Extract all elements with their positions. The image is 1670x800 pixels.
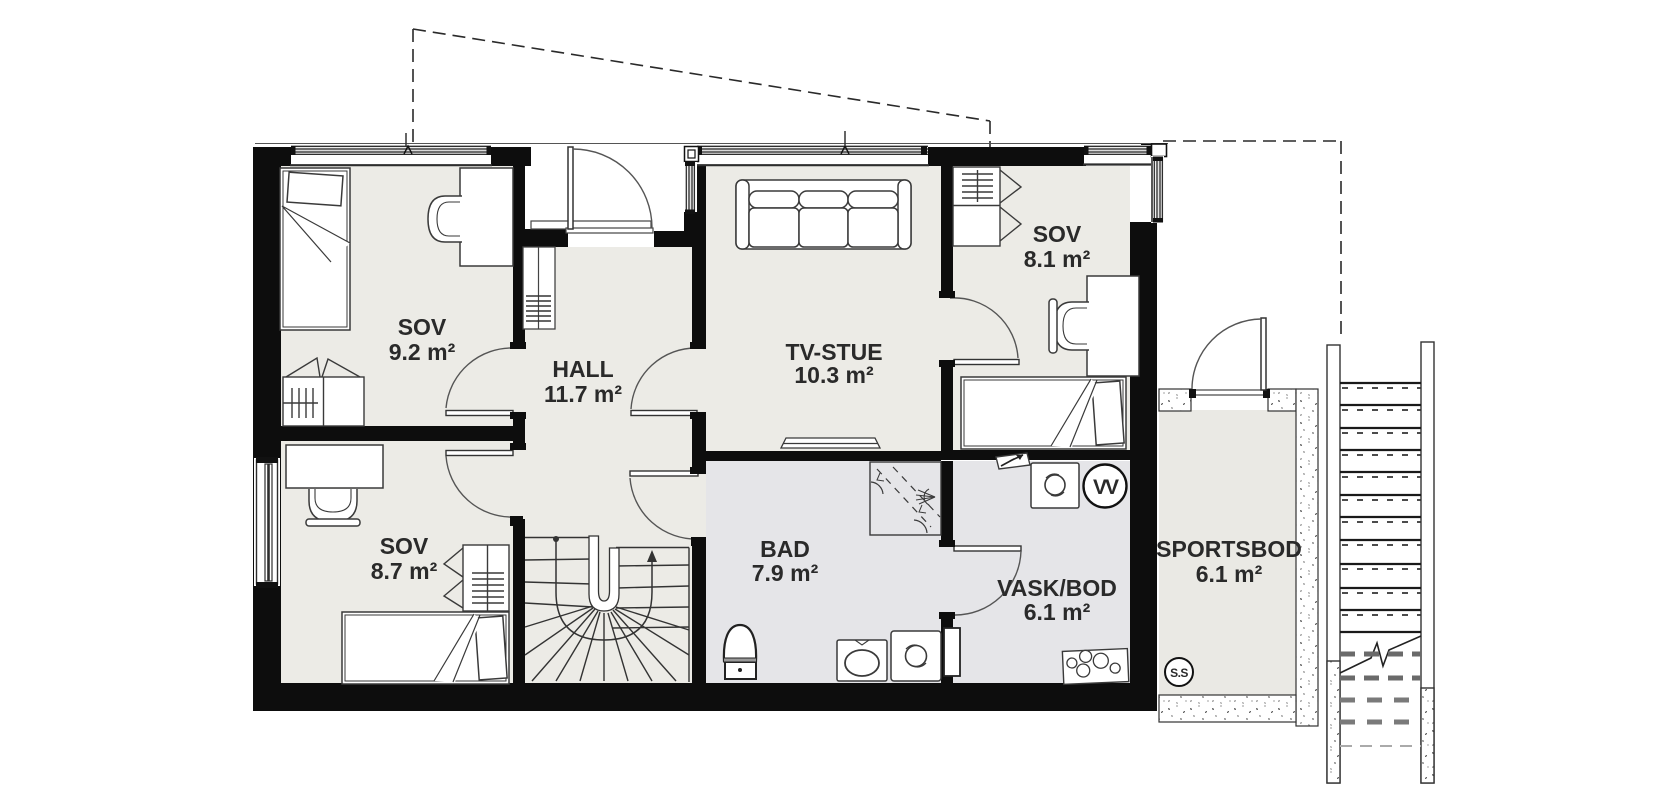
svg-text:HALL: HALL (552, 356, 613, 382)
svg-text:VASK/BOD: VASK/BOD (997, 575, 1117, 601)
svg-text:BAD: BAD (760, 536, 810, 562)
svg-text:SOV: SOV (1033, 221, 1082, 247)
svg-text:8.7 m²: 8.7 m² (371, 558, 438, 584)
svg-text:9.2 m²: 9.2 m² (389, 339, 456, 365)
svg-text:11.7 m²: 11.7 m² (544, 381, 622, 407)
svg-text:SOV: SOV (398, 314, 447, 340)
svg-text:10.3 m²: 10.3 m² (794, 362, 874, 388)
svg-text:S.S: S.S (1170, 666, 1188, 680)
svg-text:6.1 m²: 6.1 m² (1196, 561, 1263, 587)
svg-text:VV: VV (1093, 476, 1119, 499)
svg-text:SPORTSBOD: SPORTSBOD (1156, 536, 1302, 562)
svg-text:SOV: SOV (380, 533, 429, 559)
svg-text:8.1 m²: 8.1 m² (1024, 246, 1091, 272)
svg-text:7.9 m²: 7.9 m² (752, 560, 819, 586)
svg-text:6.1 m²: 6.1 m² (1024, 599, 1091, 625)
